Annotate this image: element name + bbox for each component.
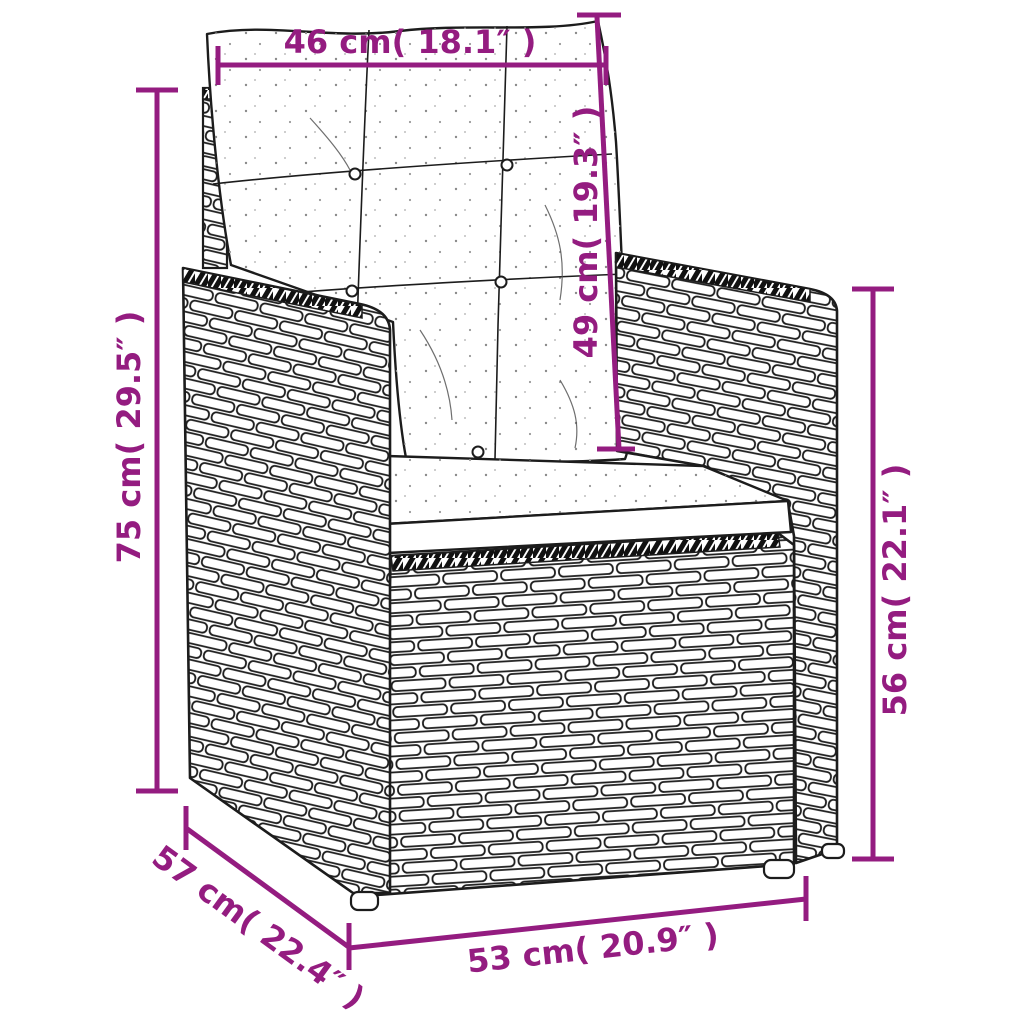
- left-arm-panel: [183, 268, 390, 893]
- product-dimension-diagram: 46 cm( 18.1″ ) 49 cm( 19.3″ ) 75 cm( 29.…: [0, 0, 1024, 1024]
- front-right-foot: [764, 860, 794, 878]
- base-panel: [377, 533, 794, 895]
- seat-width-label: 53 cm( 20.9″ ): [465, 916, 720, 981]
- armchair-illustration: [183, 21, 844, 910]
- front-left-foot: [351, 892, 378, 910]
- armrest-height-label: 56 cm( 22.1″ ): [876, 464, 914, 717]
- dim-total-height: 75 cm( 29.5″ ): [110, 90, 178, 791]
- dim-armrest-height: 56 cm( 22.1″ ): [852, 289, 914, 859]
- armchair-dimension-drawing: 46 cm( 18.1″ ) 49 cm( 19.3″ ) 75 cm( 29.…: [0, 0, 1024, 1024]
- total-height-label: 75 cm( 29.5″ ): [110, 311, 148, 564]
- back-cushion-width-label: 46 cm( 18.1″ ): [284, 23, 537, 61]
- rear-right-foot: [822, 844, 844, 858]
- back-cushion-height-label: 49 cm( 19.3″ ): [567, 106, 605, 359]
